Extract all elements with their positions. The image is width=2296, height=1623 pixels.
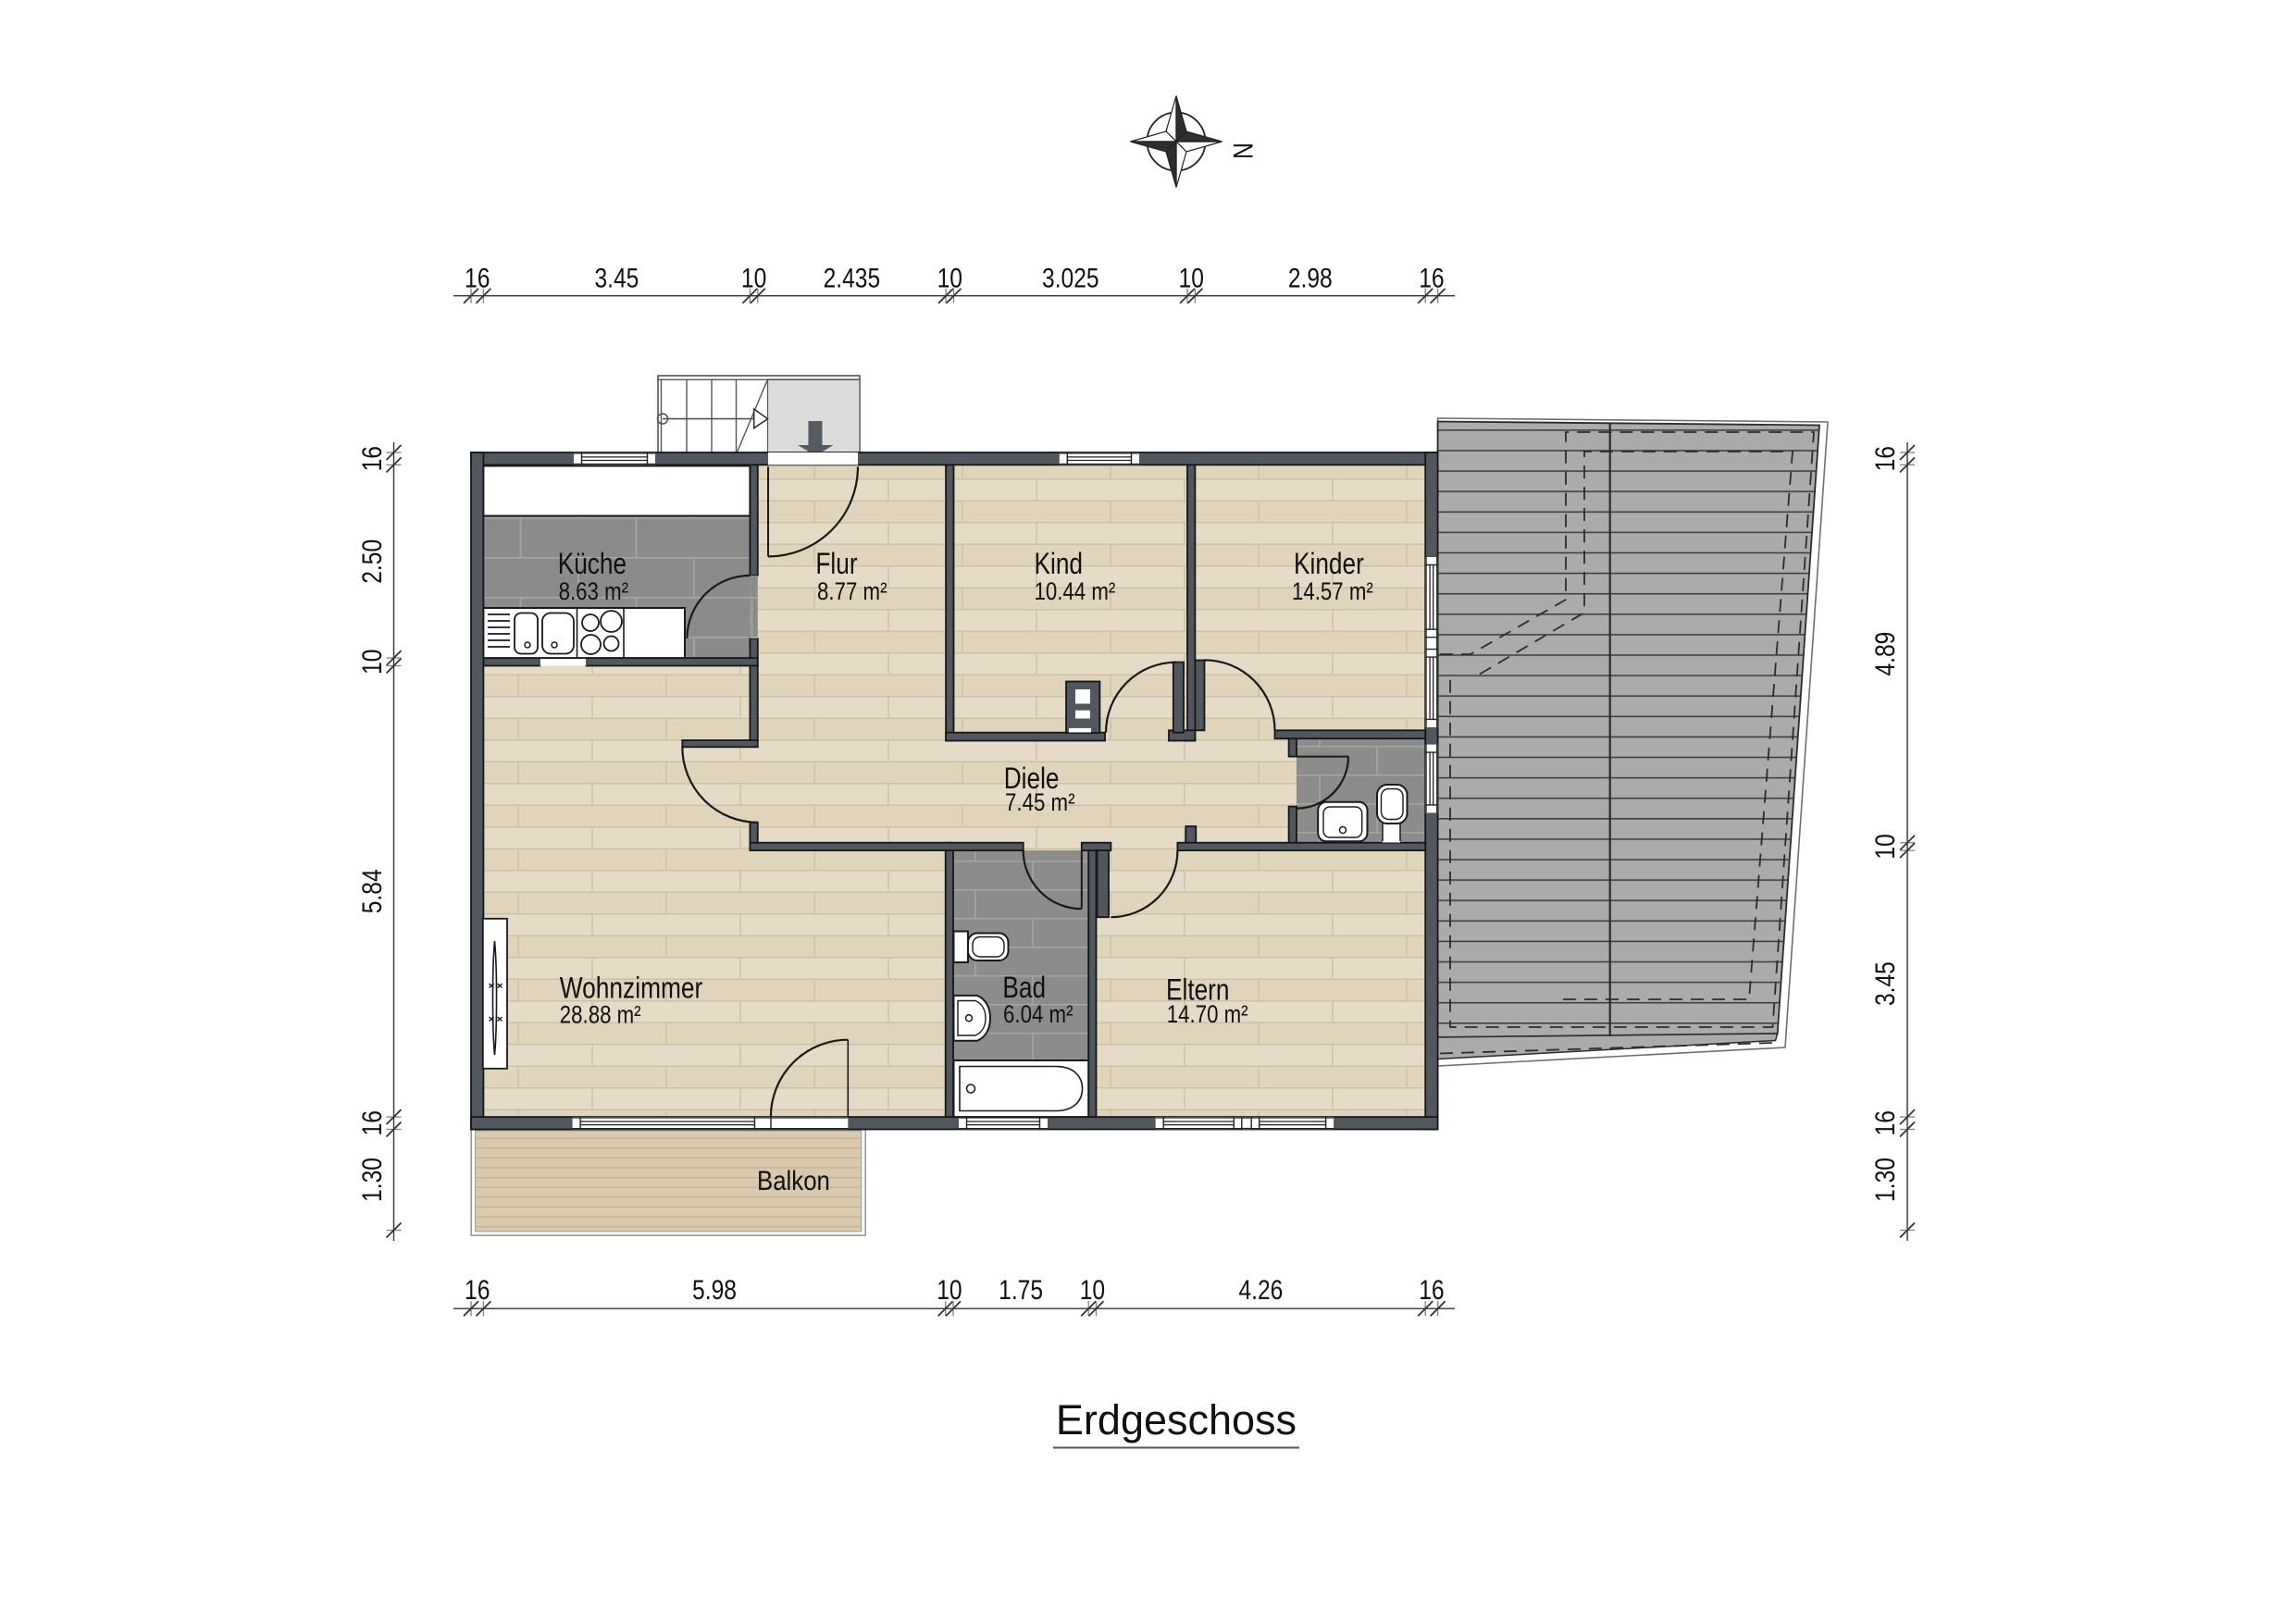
svg-text:Kind: Kind [1035,547,1084,580]
svg-text:10: 10 [741,264,766,294]
svg-text:Kinder: Kinder [1294,547,1364,580]
svg-text:16: 16 [1870,1110,1901,1135]
svg-text:10: 10 [1179,264,1204,294]
svg-text:Balkon: Balkon [757,1166,830,1196]
svg-text:5.84: 5.84 [357,869,388,913]
svg-text:10: 10 [937,1275,962,1306]
svg-text:16: 16 [357,1110,388,1135]
svg-text:16: 16 [1419,1275,1444,1306]
svg-text:10: 10 [357,650,388,675]
svg-text:16: 16 [465,1275,490,1306]
svg-text:Wohnzimmer: Wohnzimmer [560,972,703,1005]
svg-text:8.77 m²: 8.77 m² [817,577,887,605]
svg-text:Bad: Bad [1002,971,1046,1004]
svg-text:N: N [1227,142,1258,159]
svg-text:3.025: 3.025 [1042,264,1099,294]
svg-text:4.26: 4.26 [1238,1275,1283,1306]
svg-text:16: 16 [465,264,490,294]
svg-text:1.30: 1.30 [357,1158,388,1202]
svg-text:Erdgeschoss: Erdgeschoss [1056,1396,1297,1443]
svg-text:28.88 m²: 28.88 m² [560,1001,641,1029]
svg-text:10: 10 [937,264,962,294]
svg-text:5.98: 5.98 [692,1275,737,1306]
svg-text:2.435: 2.435 [824,264,881,294]
svg-text:10: 10 [1080,1275,1105,1306]
svg-text:14.70 m²: 14.70 m² [1167,1000,1248,1028]
svg-text:6.04 m²: 6.04 m² [1003,1000,1074,1028]
svg-text:2.50: 2.50 [357,539,388,584]
svg-text:2.98: 2.98 [1288,264,1333,294]
svg-text:3.45: 3.45 [594,264,639,294]
svg-text:3.45: 3.45 [1870,961,1901,1006]
svg-text:7.45 m²: 7.45 m² [1005,788,1075,816]
svg-text:16: 16 [1870,446,1901,471]
svg-text:16: 16 [1419,264,1444,294]
svg-text:1.75: 1.75 [999,1275,1043,1306]
svg-text:14.57 m²: 14.57 m² [1292,577,1373,605]
svg-text:Flur: Flur [815,547,857,580]
svg-text:8.63 m²: 8.63 m² [559,577,629,605]
svg-text:1.30: 1.30 [1870,1158,1901,1202]
svg-text:Küche: Küche [558,547,627,580]
svg-text:4.89: 4.89 [1870,632,1901,676]
svg-text:16: 16 [357,446,388,471]
svg-text:10: 10 [1870,834,1901,859]
svg-text:10.44 m²: 10.44 m² [1035,577,1116,605]
